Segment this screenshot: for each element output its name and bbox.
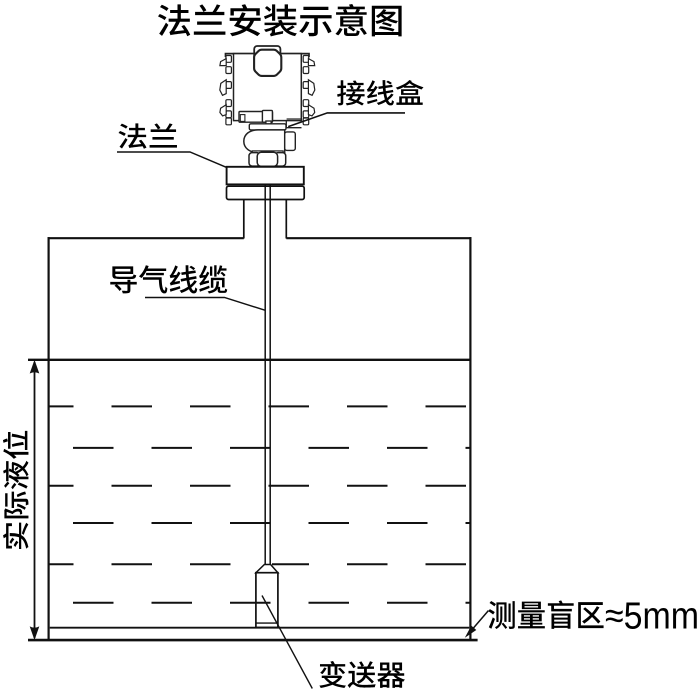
svg-text:≈5mm: ≈5mm (605, 596, 699, 638)
